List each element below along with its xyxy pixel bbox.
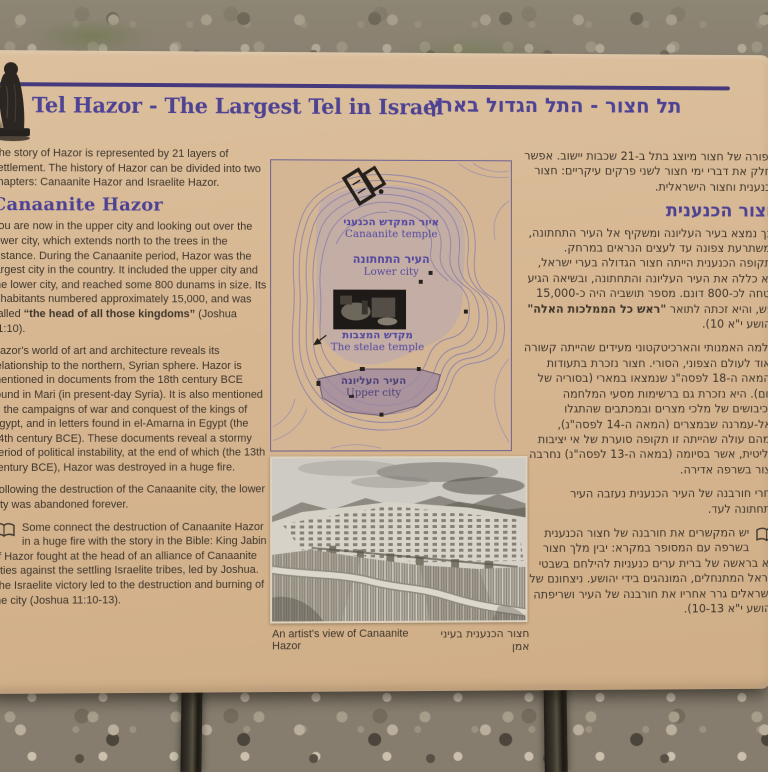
english-bible-note: Some connect the destruction of Canaanit… bbox=[0, 520, 268, 608]
english-intro: The story of Hazor is represented by 21 … bbox=[0, 146, 268, 191]
hebrew-section-heading: חצור הכנענית bbox=[524, 203, 768, 219]
english-p1-quote: “the head of all those kingdoms” bbox=[24, 308, 195, 320]
hebrew-bible-note: יש המקשרים את חורבנה של חצור הכנענית בשר… bbox=[524, 525, 768, 617]
english-paragraph-2: Hazor's world of art and architecture re… bbox=[0, 344, 268, 475]
hebrew-paragraph-3: אחרי חורבנה של העיר הכנענית נעזבה העיר ה… bbox=[524, 486, 768, 517]
hebrew-p1-ref: (יהושע י"א 10). bbox=[702, 317, 768, 331]
english-bible-text: Some connect the destruction of Canaanit… bbox=[0, 521, 267, 607]
english-p1-text: You are now in the upper city and lookin… bbox=[0, 220, 266, 320]
english-text-column: The story of Hazor is represented by 21 … bbox=[0, 146, 268, 616]
artist-view-illustration bbox=[270, 456, 527, 623]
caption-hebrew: חצור הכנענית בעיני אמן bbox=[428, 627, 530, 653]
english-paragraph-3: Following the destruction of the Canaani… bbox=[0, 483, 268, 513]
hebrew-p1-quote: "ראש כל הממלכות האלה" bbox=[527, 301, 666, 315]
hebrew-paragraph-2: עולמה האמנותי והארכיטקטוני מעידים שהייתה… bbox=[524, 341, 768, 478]
english-section-heading: Canaanite Hazor bbox=[0, 198, 268, 214]
sign-leg-left bbox=[180, 682, 202, 772]
tel-hazor-contour-map: איור המקדש הכנעני Canaanite temple העיר … bbox=[270, 159, 512, 451]
english-paragraph-1: You are now in the upper city and lookin… bbox=[0, 219, 268, 336]
caption-english: An artist's view of Canaanite Hazor bbox=[272, 628, 428, 655]
contour-map-drawing bbox=[271, 160, 511, 450]
page-title-hebrew: תל חצור - התל הגדול בארץ bbox=[428, 93, 681, 118]
illustration-caption: An artist's view of Canaanite Hazor חצור… bbox=[272, 627, 529, 654]
open-book-icon bbox=[755, 526, 768, 547]
hebrew-intro: סיפורה של חצור מיוצג בתל ב-21 שכבות יישו… bbox=[524, 149, 768, 196]
header-rule bbox=[0, 82, 730, 90]
open-book-icon bbox=[0, 522, 16, 544]
hazor-statue-icon bbox=[0, 60, 36, 147]
page-title-english: Tel Hazor - The Largest Tel in Israel bbox=[32, 92, 444, 119]
hebrew-paragraph-1: הנך נמצא בעיר העליונה ומשקיף אל העיר התח… bbox=[524, 225, 768, 332]
information-sign-panel: Tel Hazor - The Largest Tel in Israel תל… bbox=[0, 50, 768, 694]
hebrew-bible-text: יש המקשרים את חורבנה של חצור הכנענית בשר… bbox=[529, 525, 768, 615]
hebrew-text-column: סיפורה של חצור מיוצג בתל ב-21 שכבות יישו… bbox=[524, 149, 768, 627]
